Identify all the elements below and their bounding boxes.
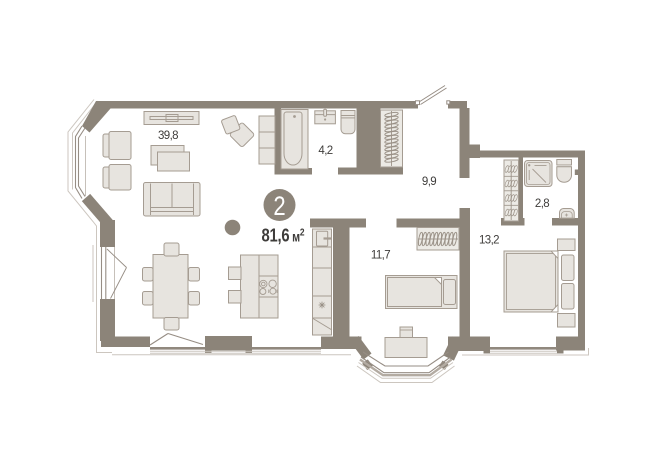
svg-text:4,2: 4,2 <box>318 145 332 157</box>
svg-text:2,8: 2,8 <box>535 198 549 210</box>
svg-text:11,7: 11,7 <box>371 250 390 262</box>
svg-text:39,8: 39,8 <box>158 130 178 142</box>
svg-text:9,9: 9,9 <box>422 176 436 188</box>
svg-text:13,2: 13,2 <box>479 235 499 247</box>
svg-text:2: 2 <box>273 192 285 222</box>
